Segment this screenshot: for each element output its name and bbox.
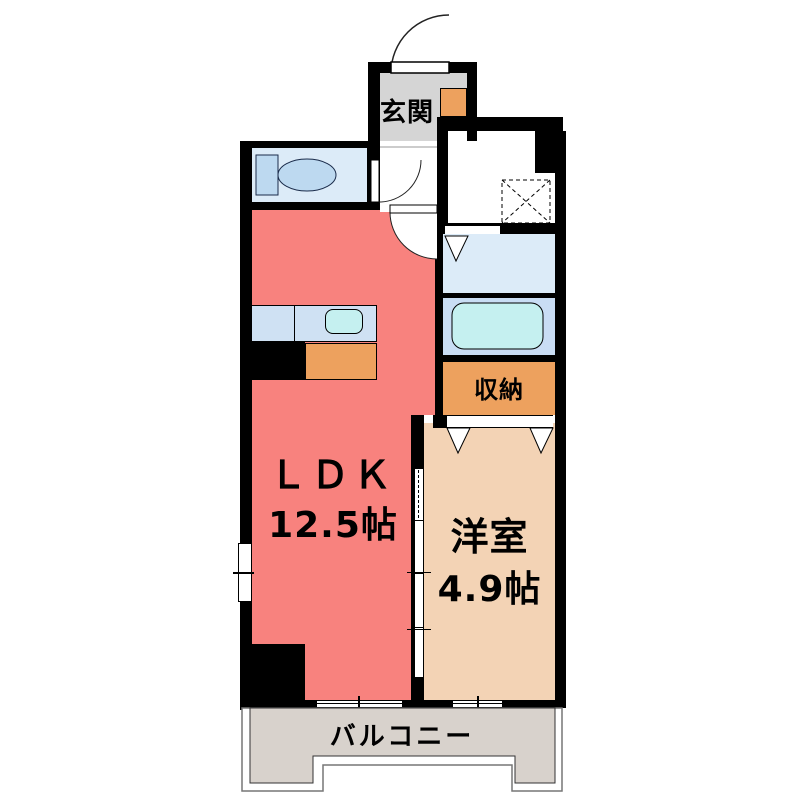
room-western-floor — [424, 423, 555, 700]
western-room-size-label: 4.9帖 — [424, 572, 555, 608]
wall-topright-column — [535, 131, 566, 173]
wall-toilet-bottom — [240, 202, 374, 210]
storage-label: 収納 — [443, 378, 555, 402]
room-service-floor-ext — [535, 168, 555, 223]
room-washroom-floor — [443, 234, 555, 293]
window-ldk-left-tick — [233, 572, 254, 574]
sliding-door-dashed-track — [418, 470, 419, 518]
room-toilet-floor — [252, 148, 367, 202]
sliding-door-tick-2 — [407, 629, 431, 630]
western-room-label: 洋室 — [424, 518, 555, 556]
wall-ldk-right-upper — [435, 205, 443, 415]
window-ldk-balcony-tick — [358, 696, 360, 710]
ldk-size-label: 12.5帖 — [248, 508, 418, 544]
wall-bottom — [240, 700, 566, 708]
sliding-door-line-2 — [414, 573, 424, 574]
wall-toilet-right — [367, 141, 380, 210]
wall-block-ldk-corner — [252, 644, 305, 700]
kitchen-sink — [325, 309, 363, 334]
kitchen-range-unit — [305, 343, 377, 380]
opening-closet-doors — [447, 415, 553, 428]
room-hall-floor — [380, 141, 440, 212]
entrance-door-arc — [391, 15, 449, 73]
wall-band-top — [437, 117, 563, 131]
room-service-floor — [447, 131, 535, 223]
wall-washroom-bath — [443, 293, 555, 298]
ldk-label: ＬＤＫ — [252, 456, 412, 494]
floor-plan: 玄関 収納 ＬＤＫ 12.5帖 洋室 4.9帖 バルコニー — [0, 0, 800, 800]
wall-entry-top-left — [380, 62, 392, 73]
genkan-label: 玄関 — [367, 100, 447, 126]
kitchen-counter-divider — [294, 305, 295, 342]
wall-bath-storage — [443, 355, 555, 362]
wall-storage-left-stub — [433, 415, 447, 428]
opening-washroom-door — [445, 226, 500, 234]
room-bath-floor — [443, 297, 555, 355]
balcony-label: バルコニー — [242, 724, 562, 750]
window-western-balcony-tick — [477, 696, 479, 710]
wall-toilet-top — [240, 141, 374, 148]
sliding-door-line-3 — [414, 627, 424, 628]
wall-left-outer — [240, 141, 252, 710]
wall-right-outer — [555, 173, 566, 708]
wall-block-kitchen — [242, 342, 305, 380]
